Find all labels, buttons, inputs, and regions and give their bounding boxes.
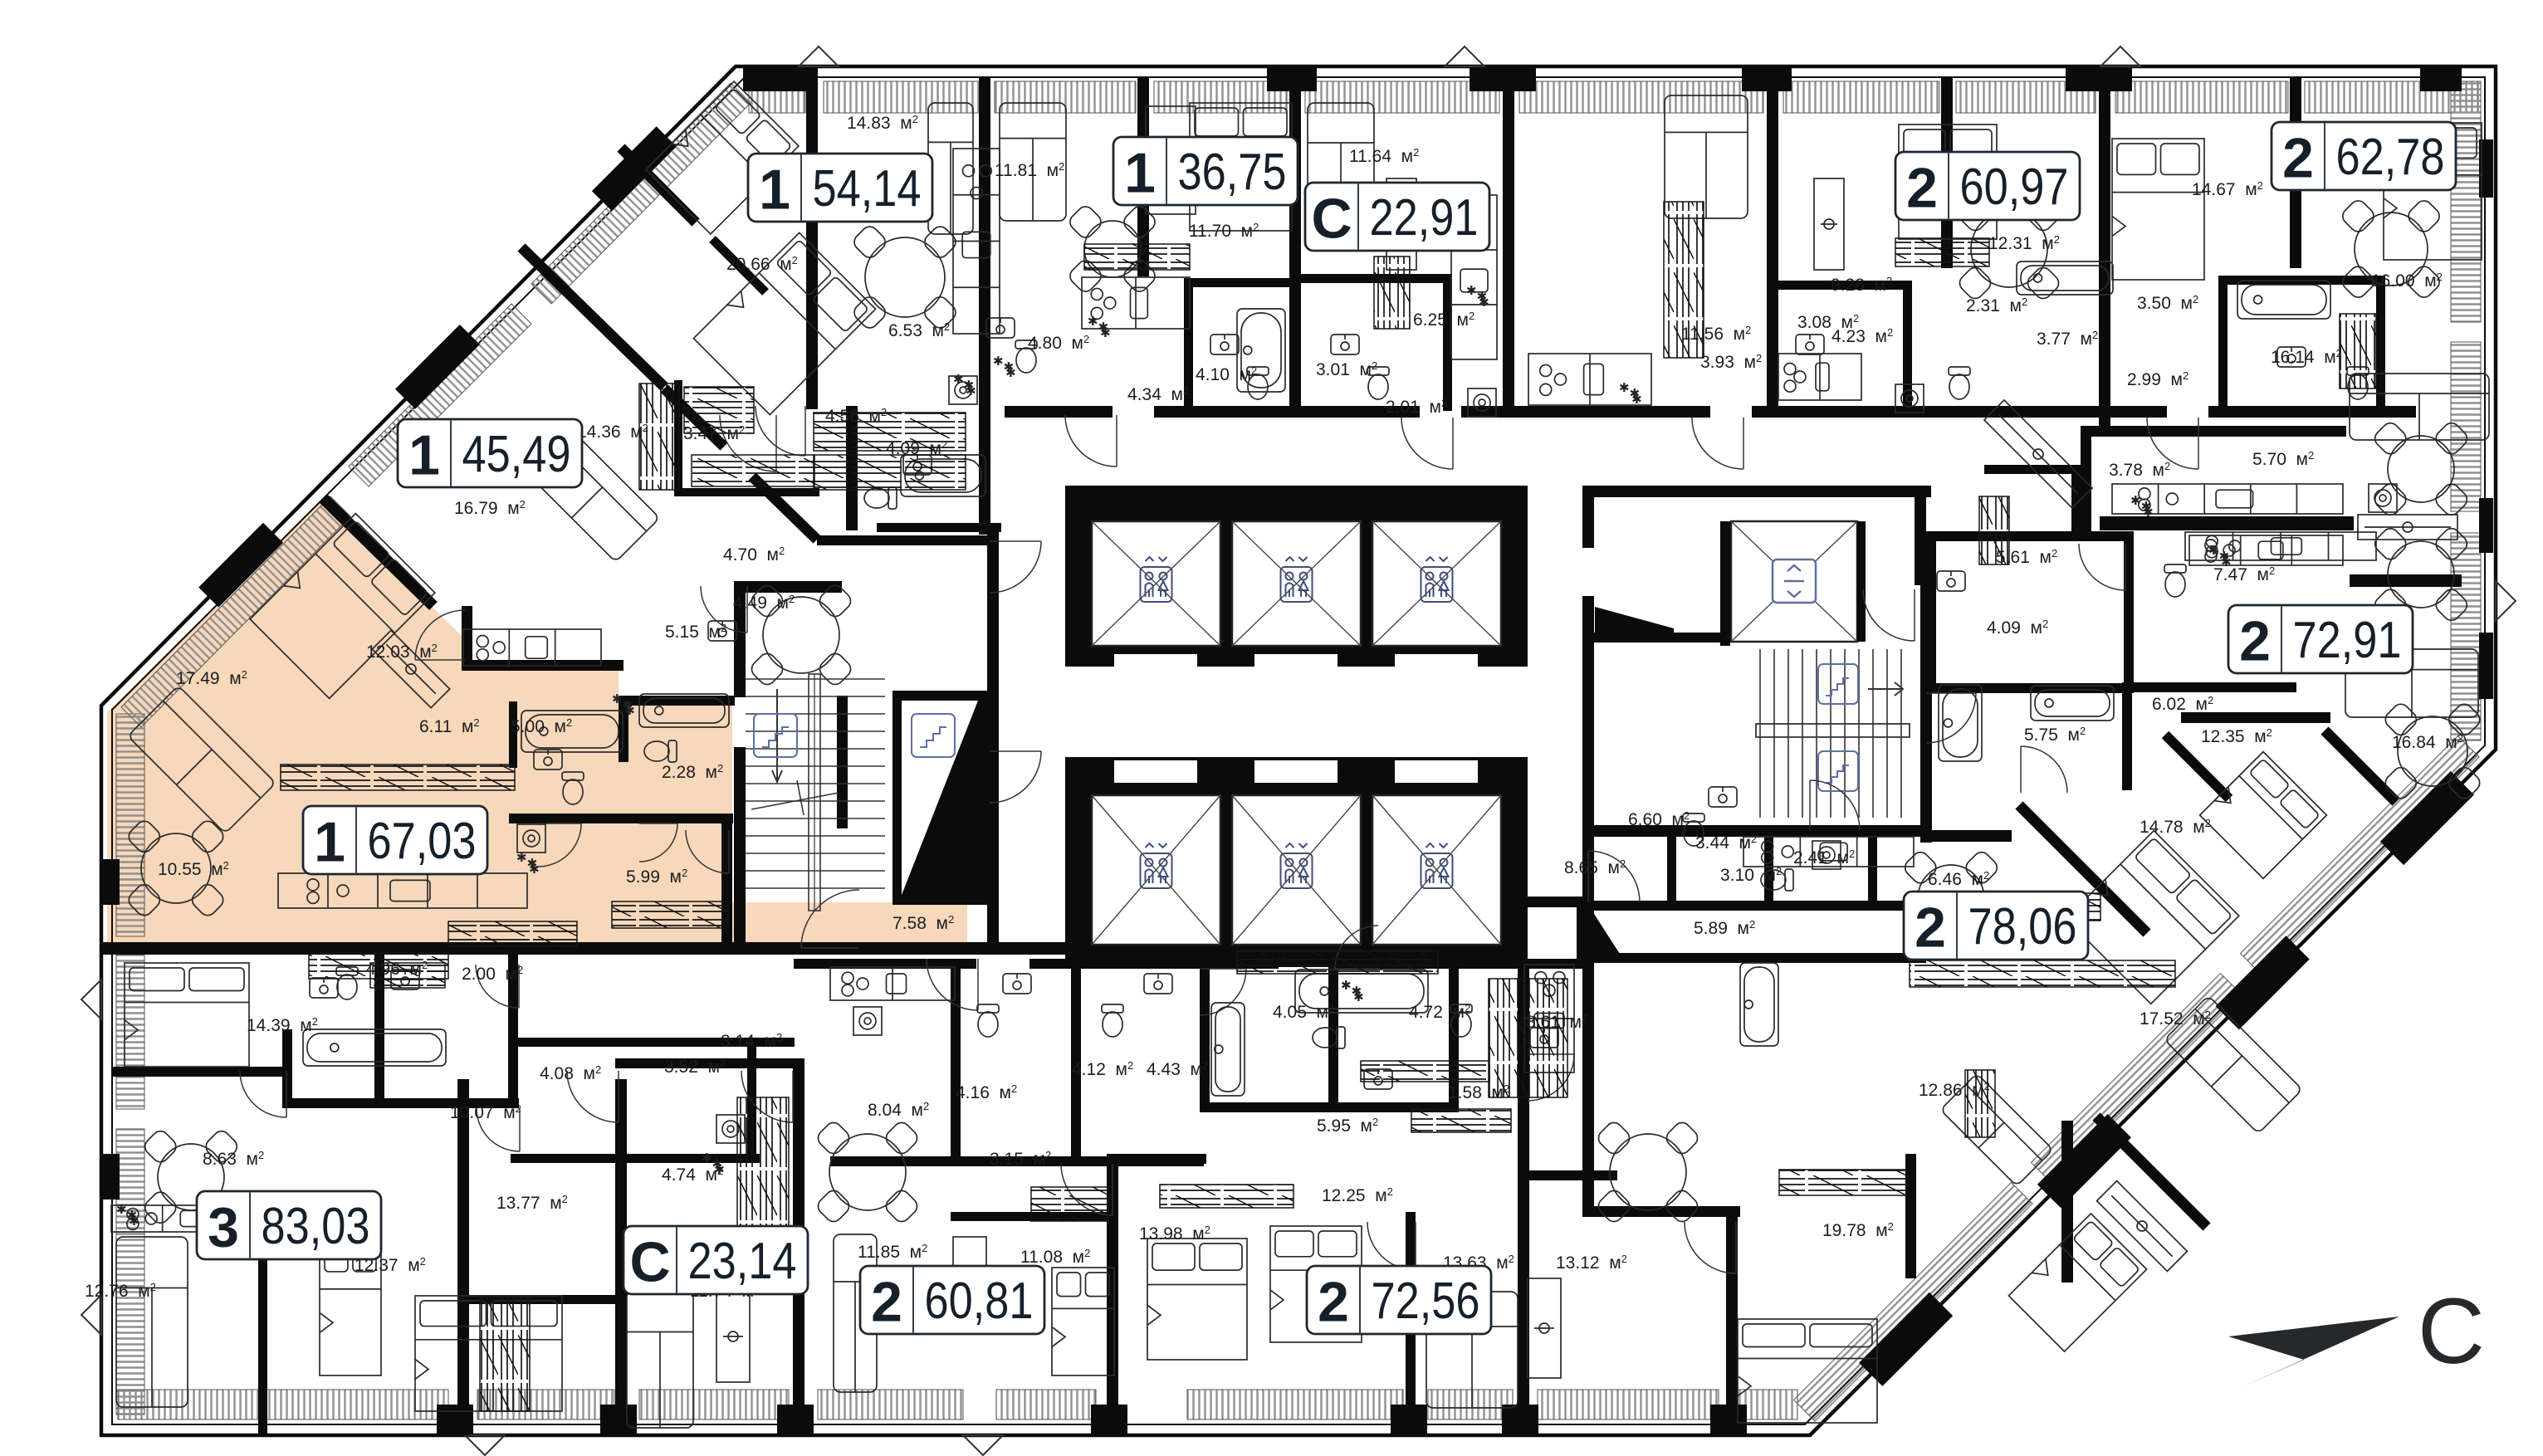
- svg-text:5.61 м2: 5.61 м2: [1996, 547, 2057, 567]
- svg-text:17.49 м2: 17.49 м2: [176, 668, 247, 688]
- svg-text:4.43 м2: 4.43 м2: [1147, 1059, 1208, 1079]
- svg-text:12.03 м2: 12.03 м2: [366, 642, 438, 662]
- svg-text:2: 2: [871, 1270, 902, 1333]
- svg-text:14.83 м2: 14.83 м2: [847, 113, 918, 133]
- svg-text:4.23 м2: 4.23 м2: [1831, 326, 1893, 346]
- svg-text:12.76 м2: 12.76 м2: [85, 1281, 156, 1301]
- svg-text:83,03: 83,03: [262, 1198, 370, 1255]
- svg-text:13.12 м2: 13.12 м2: [1556, 1253, 1627, 1273]
- svg-text:19.78 м2: 19.78 м2: [1822, 1220, 1894, 1240]
- svg-text:14.67 м2: 14.67 м2: [2192, 179, 2263, 199]
- svg-text:9.28 м2: 9.28 м2: [1831, 275, 1892, 295]
- svg-text:67,03: 67,03: [368, 813, 477, 870]
- svg-text:16.14 м2: 16.14 м2: [2271, 347, 2342, 367]
- svg-text:16.00 м2: 16.00 м2: [2371, 271, 2443, 291]
- svg-text:3.01 м2: 3.01 м2: [1316, 359, 1377, 379]
- svg-text:7.47 м2: 7.47 м2: [2213, 564, 2275, 584]
- svg-text:78,06: 78,06: [1968, 898, 2077, 955]
- svg-text:17.52 м2: 17.52 м2: [2140, 1009, 2211, 1028]
- svg-text:72,56: 72,56: [1372, 1273, 1480, 1330]
- svg-text:8.63 м2: 8.63 м2: [203, 1149, 264, 1169]
- svg-text:6.46 м2: 6.46 м2: [1928, 869, 1989, 889]
- svg-text:10.07 м2: 10.07 м2: [450, 1102, 521, 1122]
- svg-text:4.70 м2: 4.70 м2: [723, 545, 785, 564]
- svg-text:5.00 м2: 5.00 м2: [511, 716, 572, 736]
- svg-text:12.86 м2: 12.86 м2: [1919, 1080, 1990, 1100]
- svg-text:5.89 м2: 5.89 м2: [1694, 918, 1755, 938]
- svg-text:4.74 м2: 4.74 м2: [662, 1165, 723, 1185]
- svg-text:3: 3: [208, 1195, 239, 1258]
- svg-text:14.78 м2: 14.78 м2: [2140, 817, 2211, 837]
- svg-text:7.58 м2: 7.58 м2: [892, 913, 954, 933]
- svg-text:C: C: [629, 1230, 670, 1293]
- svg-text:3.44 м2: 3.44 м2: [1695, 833, 1757, 853]
- svg-text:11.85 м2: 11.85 м2: [858, 1242, 927, 1262]
- svg-text:13.98 м2: 13.98 м2: [1139, 1224, 1210, 1243]
- svg-text:12.31 м2: 12.31 м2: [1988, 233, 2060, 253]
- svg-text:20.66 м2: 20.66 м2: [726, 254, 798, 274]
- svg-text:1: 1: [759, 158, 790, 221]
- svg-text:72,91: 72,91: [2293, 612, 2402, 669]
- svg-text:4.49 м2: 4.49 м2: [733, 593, 795, 613]
- svg-text:16.79 м2: 16.79 м2: [454, 498, 526, 518]
- svg-text:1.58 м2: 1.58 м2: [1448, 1082, 1509, 1102]
- svg-text:1: 1: [408, 423, 440, 486]
- svg-text:6.02 м2: 6.02 м2: [2152, 694, 2213, 714]
- svg-text:12.35 м2: 12.35 м2: [2201, 726, 2272, 746]
- svg-text:8.65 м2: 8.65 м2: [1564, 857, 1626, 877]
- svg-text:5.75 м2: 5.75 м2: [2024, 725, 2086, 745]
- svg-text:2: 2: [1906, 156, 1938, 219]
- svg-text:2.01 м2: 2.01 м2: [1386, 397, 1447, 417]
- svg-text:3.10 м2: 3.10 м2: [1720, 865, 1782, 885]
- svg-text:5.95 м2: 5.95 м2: [1317, 1116, 1378, 1136]
- svg-text:4.09 м2: 4.09 м2: [886, 438, 947, 458]
- svg-text:10.55 м2: 10.55 м2: [158, 859, 229, 879]
- svg-text:4.34 м2: 4.34 м2: [1127, 384, 1189, 404]
- svg-text:4.96 м2: 4.96 м2: [366, 959, 428, 979]
- svg-text:2: 2: [2239, 609, 2271, 672]
- svg-text:11.56 м2: 11.56 м2: [1681, 324, 1751, 344]
- svg-text:C: C: [1311, 187, 1352, 250]
- svg-text:3.52 м2: 3.52 м2: [664, 1057, 726, 1077]
- svg-text:11.81 м2: 11.81 м2: [995, 160, 1064, 180]
- svg-text:2: 2: [2282, 126, 2314, 189]
- svg-text:3.14 м2: 3.14 м2: [721, 1031, 782, 1051]
- svg-text:5.70 м2: 5.70 м2: [2252, 449, 2314, 469]
- svg-text:2.28 м2: 2.28 м2: [662, 762, 723, 782]
- svg-text:1: 1: [1124, 141, 1156, 204]
- svg-text:8.04 м2: 8.04 м2: [868, 1100, 929, 1120]
- svg-text:4.08 м2: 4.08 м2: [540, 1063, 601, 1083]
- svg-text:11.08 м2: 11.08 м2: [1020, 1247, 1090, 1267]
- svg-text:3.50 м2: 3.50 м2: [2137, 293, 2198, 313]
- svg-text:54,14: 54,14: [813, 160, 922, 217]
- svg-text:2.41 м2: 2.41 м2: [1793, 848, 1855, 867]
- svg-text:6.25 м2: 6.25 м2: [1413, 310, 1474, 330]
- svg-text:5.15 м2: 5.15 м2: [665, 622, 726, 642]
- svg-text:5.99 м2: 5.99 м2: [626, 867, 687, 887]
- svg-text:3.78 м2: 3.78 м2: [2109, 460, 2170, 480]
- svg-text:C: C: [2418, 1279, 2485, 1383]
- svg-text:14.36 м2: 14.36 м2: [577, 422, 648, 442]
- svg-text:4.80 м2: 4.80 м2: [1028, 333, 1089, 353]
- svg-text:3.77 м2: 3.77 м2: [2037, 329, 2098, 349]
- svg-text:2: 2: [1318, 1270, 1349, 1333]
- svg-text:36,75: 36,75: [1178, 144, 1287, 201]
- svg-text:6.11 м2: 6.11 м2: [419, 716, 480, 736]
- svg-text:62,78: 62,78: [2336, 129, 2445, 186]
- svg-text:45,49: 45,49: [462, 426, 571, 483]
- svg-text:13.77 м2: 13.77 м2: [496, 1193, 568, 1213]
- svg-text:6.60 м2: 6.60 м2: [1628, 809, 1690, 829]
- svg-text:4.16 м2: 4.16 м2: [956, 1082, 1017, 1102]
- svg-text:4.12 м2: 4.12 м2: [1072, 1059, 1133, 1079]
- svg-text:22,91: 22,91: [1370, 189, 1479, 247]
- svg-text:4.05 м2: 4.05 м2: [1273, 1002, 1334, 1022]
- svg-text:2: 2: [1915, 896, 1946, 959]
- svg-text:4.10 м2: 4.10 м2: [1196, 364, 1257, 384]
- svg-text:3.15 м2: 3.15 м2: [990, 1149, 1051, 1169]
- svg-text:23,14: 23,14: [688, 1233, 797, 1290]
- svg-text:6.53 м2: 6.53 м2: [888, 320, 950, 340]
- svg-text:1: 1: [314, 810, 345, 873]
- svg-text:2.31 м2: 2.31 м2: [1966, 296, 2027, 315]
- svg-text:11.64 м2: 11.64 м2: [1349, 146, 1419, 166]
- svg-text:12.25 м2: 12.25 м2: [1322, 1185, 1393, 1205]
- svg-text:11.70 м2: 11.70 м2: [1189, 221, 1259, 241]
- svg-text:2.99 м2: 2.99 м2: [2127, 369, 2188, 389]
- svg-text:14.39 м2: 14.39 м2: [247, 1015, 318, 1035]
- svg-text:60,97: 60,97: [1960, 159, 2069, 216]
- svg-text:4.09 м2: 4.09 м2: [1987, 618, 2048, 638]
- svg-text:3.93 м2: 3.93 м2: [1700, 352, 1762, 372]
- svg-text:4.72 м2: 4.72 м2: [1409, 1002, 1470, 1022]
- svg-text:4.56 м2: 4.56 м2: [825, 406, 887, 426]
- svg-text:16.84 м2: 16.84 м2: [2392, 732, 2463, 752]
- svg-text:60,81: 60,81: [925, 1273, 1034, 1330]
- svg-text:8.61 м2: 8.61 м2: [1526, 1012, 1587, 1032]
- svg-text:2.00 м2: 2.00 м2: [462, 964, 523, 984]
- svg-text:3.47 м2: 3.47 м2: [683, 423, 745, 443]
